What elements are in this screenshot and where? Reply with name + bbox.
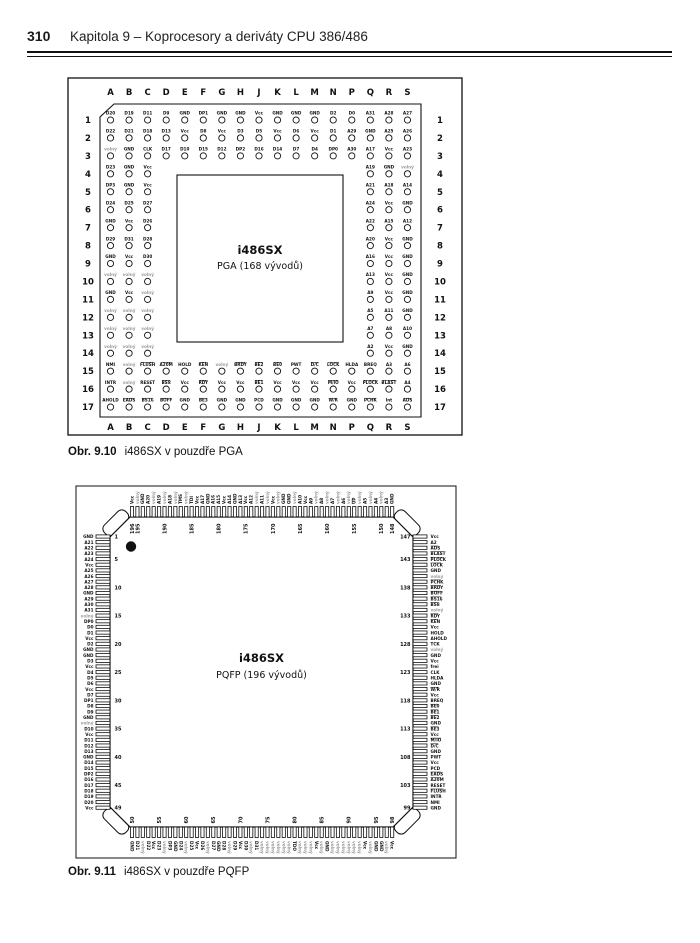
svg-text:A10: A10	[403, 326, 412, 331]
pqfp-pin-108: PWT	[413, 755, 441, 760]
svg-text:GND: GND	[272, 398, 283, 403]
svg-text:A21: A21	[84, 540, 93, 545]
svg-text:P: P	[349, 423, 355, 433]
pga-pin-A14: volný	[104, 344, 117, 356]
pqfp-pin-59: D24	[178, 827, 183, 850]
pga-pin-S17: ADS	[403, 398, 413, 410]
pga-pin-M16: Vcc	[311, 380, 320, 392]
pqfp-pin-74: volný	[260, 827, 265, 854]
svg-text:GND: GND	[235, 398, 246, 403]
pqfp-pin-169: volný	[276, 491, 281, 517]
pga-pin-L1: GND	[291, 111, 302, 123]
svg-text:165: 165	[298, 523, 304, 534]
pga-pin-K2: Vcc	[273, 129, 282, 141]
svg-text:volný: volný	[281, 841, 286, 854]
pqfp-pin-132: KEN	[413, 619, 441, 624]
pga-pin-Q13: A7	[367, 326, 373, 338]
pqfp-pin-70: Vcc	[238, 827, 243, 850]
svg-text:185: 185	[190, 523, 196, 534]
pqfp-pin-41: D14	[84, 760, 110, 765]
pqfp-pin-183: A17	[200, 495, 205, 517]
pqfp-pin-1: GND	[83, 534, 110, 539]
svg-text:D2: D2	[87, 642, 93, 647]
pqfp-pin-140: volný	[413, 574, 444, 579]
svg-text:PCD: PCD	[254, 398, 264, 403]
svg-text:D16: D16	[84, 777, 93, 782]
pqfp-pin-28: Vcc	[85, 687, 110, 692]
pqfp-pin-84: Vcc	[314, 827, 319, 850]
pqfp-pin-number: 5	[115, 557, 119, 563]
pqfp-pin-78: volný	[281, 827, 286, 854]
svg-text:A14: A14	[403, 182, 412, 187]
pqfp-pin-154: volný	[357, 491, 362, 517]
pqfp-pin-153: A5	[362, 498, 367, 517]
pqfp-pin-105: EADS	[413, 772, 443, 777]
pga-pin-S8: GND	[402, 236, 413, 248]
svg-text:GND: GND	[291, 111, 302, 116]
pqfp-pin-73: D31	[254, 827, 259, 850]
pqfp-pin-number: 185	[190, 523, 196, 534]
svg-text:D1: D1	[87, 630, 93, 635]
pga-pin-A15: NMI	[106, 362, 116, 374]
pga-pin-S6: GND	[402, 200, 413, 212]
svg-text:Vcc: Vcc	[85, 805, 94, 810]
svg-text:A9: A9	[308, 498, 313, 504]
svg-text:BREQ: BREQ	[364, 362, 377, 367]
svg-text:N: N	[330, 423, 337, 433]
pga-pin-B12: volný	[123, 308, 136, 320]
svg-text:7: 7	[437, 224, 443, 234]
pga-pin-Q16: PLOCK	[363, 380, 379, 392]
pqfp-pin-number: 50	[130, 816, 136, 823]
pga-pin-B2: D21	[124, 129, 133, 141]
pga-pin-Q15: BREQ	[364, 362, 377, 374]
pqfp-pin-number: 55	[157, 816, 163, 823]
svg-text:D8: D8	[200, 129, 206, 134]
svg-text:HOLD: HOLD	[431, 630, 445, 635]
svg-text:A5: A5	[362, 498, 367, 504]
pqfp-pin-163: A9	[308, 498, 313, 517]
pqfp-pin-62: Vcc	[195, 827, 200, 850]
svg-text:GND: GND	[180, 398, 191, 403]
pqfp-pin-126: GND	[413, 653, 441, 658]
svg-text:Vcc: Vcc	[431, 732, 440, 737]
svg-text:A12: A12	[403, 218, 412, 223]
svg-text:D10: D10	[84, 726, 93, 731]
svg-text:D22: D22	[146, 841, 151, 850]
pga-pin-M15: D/C	[311, 362, 319, 374]
pga-pin-G17: GND	[217, 398, 228, 410]
pqfp-pin-90: volný	[346, 827, 351, 854]
svg-text:A18: A18	[384, 182, 393, 187]
svg-text:volný: volný	[335, 841, 340, 854]
pga-pin-L16: Vcc	[292, 380, 301, 392]
pqfp-pin-34: volný	[81, 721, 110, 726]
svg-text:75: 75	[265, 816, 271, 823]
pqfp-pin-5: A24	[84, 557, 110, 562]
pqfp-pin-22: GND	[83, 653, 110, 658]
pqfp-pin-107: Vcc	[413, 760, 439, 765]
svg-text:GND: GND	[402, 254, 413, 259]
pga-pin-B13: volný	[123, 326, 136, 338]
svg-text:Vcc: Vcc	[311, 129, 320, 134]
pga-pin-B5: GND	[124, 182, 135, 194]
pqfp-pin-138: BRDY	[413, 585, 444, 590]
pqfp-pin-109: GND	[413, 749, 441, 754]
svg-text:L: L	[293, 423, 299, 433]
svg-text:J: J	[256, 423, 260, 433]
pga-pin-S13: A10	[403, 326, 412, 338]
svg-text:GND: GND	[402, 308, 413, 313]
pqfp-pin-number: 118	[400, 698, 411, 704]
svg-text:BREQ: BREQ	[431, 698, 444, 703]
pqfp-pin-39: D13	[84, 749, 110, 754]
svg-text:Vcc: Vcc	[85, 687, 94, 692]
svg-text:A18: A18	[167, 495, 172, 504]
pqfp-pin-101: INTR	[413, 794, 442, 799]
pga-pin-Q8: A20	[366, 236, 375, 248]
pga-pin-G3: D12	[217, 147, 226, 159]
pqfp-pin-30: DP1	[84, 698, 110, 703]
pga-pin-S7: A12	[403, 218, 412, 230]
svg-text:INTR: INTR	[105, 380, 117, 385]
svg-text:3: 3	[85, 152, 91, 162]
svg-text:volný: volný	[265, 491, 270, 504]
pqfp-pin-81: volný	[298, 827, 303, 854]
svg-text:A17: A17	[200, 495, 205, 504]
svg-text:D31: D31	[254, 841, 259, 850]
svg-text:D6: D6	[293, 129, 299, 134]
svg-text:volný: volný	[276, 841, 281, 854]
pqfp-pin-6: Vcc	[85, 562, 110, 567]
pqfp-pin-43: DP2	[84, 772, 110, 777]
caption-pga: Obr. 9.10i486SX v pouzdře PGA	[68, 446, 243, 458]
caption-pga-label: Obr. 9.10	[68, 446, 117, 458]
svg-text:volný: volný	[330, 841, 335, 854]
svg-text:GND: GND	[83, 591, 94, 596]
pga-pin-D2: D13	[162, 129, 171, 141]
pga-pin-C15: FLUSH	[140, 362, 156, 374]
pqfp-pin-172: A11	[259, 495, 264, 517]
pga-pin-L15: PWT	[291, 362, 302, 374]
pqfp-pin-95: GND	[373, 827, 378, 852]
pqfp-pin-number: 1	[115, 535, 119, 541]
pqfp-pin-10: A28	[84, 585, 110, 590]
svg-text:A11: A11	[384, 308, 393, 313]
svg-text:volný: volný	[123, 362, 136, 367]
pqfp-pin-number: 15	[115, 614, 122, 620]
pga-pin-R8: Vcc	[385, 236, 394, 248]
pga-pin-B6: D25	[124, 200, 133, 212]
svg-text:Vcc: Vcc	[431, 659, 440, 664]
svg-text:190: 190	[162, 523, 168, 534]
svg-text:GND: GND	[309, 111, 320, 116]
pqfp-pin-26: D5	[87, 675, 110, 680]
pqfp-pin-13: A30	[84, 602, 110, 607]
pqfp-pin-121: GND	[413, 681, 441, 686]
pqfp-pin-25: D4	[87, 670, 110, 675]
svg-text:volný: volný	[357, 491, 362, 504]
svg-text:HLDA: HLDA	[345, 362, 359, 367]
pqfp-pin-110: D/C	[413, 743, 439, 748]
svg-text:DP2: DP2	[84, 772, 94, 777]
svg-text:volný: volný	[368, 491, 373, 504]
svg-text:GND: GND	[287, 493, 292, 504]
pqfp-pin-32: D9	[87, 709, 110, 714]
pqfp-pin-195: volný	[135, 491, 140, 517]
svg-text:volný: volný	[123, 344, 136, 349]
pqfp-pin-69: D29	[232, 827, 237, 850]
pga-pin-A9: GND	[105, 254, 116, 266]
pqfp-pin-112: Vcc	[413, 732, 439, 737]
pqfp-pin-37: D11	[84, 738, 110, 743]
pga-pin-E1: GND	[180, 111, 191, 123]
svg-text:A14: A14	[227, 495, 232, 504]
svg-text:GND: GND	[217, 398, 228, 403]
svg-text:volný: volný	[140, 841, 145, 854]
svg-text:volný: volný	[141, 326, 154, 331]
pqfp-pin-53: D22	[146, 827, 151, 850]
pqfp-pin-192: volný	[151, 491, 156, 517]
svg-text:15: 15	[82, 367, 94, 377]
pga-pin-S15: A6	[404, 362, 410, 374]
pqfp-pin-58: GND	[173, 827, 178, 852]
pga-pin-C7: D26	[143, 218, 152, 230]
svg-text:volný: volný	[384, 841, 389, 854]
pga-pin-S12: GND	[402, 308, 413, 320]
svg-text:A: A	[107, 88, 114, 98]
pqfp-pin-72: volný	[249, 827, 254, 854]
pqfp-pin-4: A23	[84, 551, 110, 556]
pqfp-pin-98: Vcc	[390, 827, 395, 850]
pqfp-pin-46: D18	[84, 788, 110, 793]
svg-text:G: G	[218, 88, 225, 98]
svg-text:D29: D29	[232, 841, 237, 850]
svg-text:D3: D3	[87, 659, 93, 664]
pga-pin-A8: D29	[106, 236, 115, 248]
svg-text:R: R	[386, 423, 393, 433]
pqfp-pin-128: TCK	[413, 642, 440, 647]
svg-text:11: 11	[82, 295, 94, 305]
svg-text:Vcc: Vcc	[85, 732, 94, 737]
pga-pin-R16: BLAST	[381, 380, 396, 392]
pqfp-pin-136: BS16	[413, 596, 443, 601]
pga-pin-A5: DP3	[106, 182, 116, 194]
pga-pin-N16: M/IO	[328, 380, 339, 392]
pga-pin-L17: GND	[291, 398, 302, 410]
pqfp-pin-27: D6	[87, 681, 110, 686]
svg-text:Vcc: Vcc	[218, 129, 227, 134]
svg-text:AHOLD: AHOLD	[102, 398, 119, 403]
svg-text:D4: D4	[87, 670, 93, 675]
svg-text:A19: A19	[157, 495, 162, 504]
pga-pin-J2: D5	[256, 129, 262, 141]
svg-text:volný: volný	[205, 841, 210, 854]
svg-text:volný: volný	[292, 491, 297, 504]
pga-pin-C16: RESET	[140, 380, 155, 392]
svg-text:M: M	[310, 88, 318, 98]
svg-text:6: 6	[437, 206, 443, 216]
pqfp-pin-75: volný	[265, 827, 270, 854]
pga-pin-D1: D9	[163, 111, 169, 123]
svg-text:C: C	[144, 88, 150, 98]
svg-text:A22: A22	[84, 546, 93, 551]
svg-text:volný: volný	[162, 491, 167, 504]
svg-text:4: 4	[437, 170, 443, 180]
pqfp-pin-162: volný	[314, 491, 319, 517]
svg-text:volný: volný	[141, 308, 154, 313]
pga-pin-P3: A30	[347, 147, 356, 159]
pqfp-pin-173: volný	[254, 491, 259, 517]
pqfp-pin-134: volný	[413, 608, 444, 613]
svg-text:D24: D24	[106, 200, 115, 205]
pga-pin-J1: Vcc	[255, 111, 264, 123]
svg-text:D30: D30	[243, 841, 248, 850]
svg-text:A22: A22	[366, 218, 375, 223]
svg-text:GND: GND	[83, 755, 94, 760]
svg-text:CLK: CLK	[143, 147, 153, 152]
svg-text:Int: Int	[386, 398, 393, 403]
pqfp-pin-175: Vcc	[243, 495, 248, 517]
svg-text:D30: D30	[143, 254, 152, 259]
svg-text:A6: A6	[341, 498, 346, 504]
pqfp-pin-23: D3	[87, 659, 110, 664]
pga-pin-G15: volný	[215, 362, 228, 374]
pqfp-pin-15: volný	[81, 613, 110, 618]
svg-text:volný: volný	[319, 841, 324, 854]
pqfp-pin-18: D1	[87, 630, 110, 635]
svg-text:Vcc: Vcc	[431, 760, 440, 765]
pga-pin-B15: volný	[123, 362, 136, 374]
pqfp-pin-24: Vcc	[85, 664, 110, 669]
pqfp-pin-161: A8	[319, 498, 324, 517]
pqfp-pin-170: Vcc	[270, 495, 275, 517]
pqfp-pin-number: 90	[347, 816, 353, 823]
svg-text:B: B	[126, 423, 132, 433]
pqfp-pin-156: volný	[346, 491, 351, 517]
pqfp-pin-155: UP	[352, 498, 357, 517]
svg-text:GND: GND	[105, 254, 116, 259]
pga-pin-Q10: A13	[366, 272, 375, 284]
pga-pin-A12: volný	[104, 308, 117, 320]
svg-text:D7: D7	[293, 147, 299, 152]
pqfp-pin-number: 170	[271, 523, 277, 534]
svg-text:Vcc: Vcc	[390, 841, 395, 850]
svg-text:A5: A5	[367, 308, 373, 313]
svg-text:Vcc: Vcc	[431, 625, 440, 630]
pga-pin-S10: GND	[402, 272, 413, 284]
pqfp-pin-87: volný	[330, 827, 335, 854]
pqfp-pin-50: GND	[130, 827, 135, 852]
svg-text:GND: GND	[347, 398, 358, 403]
svg-text:A13: A13	[366, 272, 375, 277]
pqfp-pin-47: D19	[84, 794, 110, 799]
svg-text:DP1: DP1	[199, 111, 209, 116]
svg-text:volný: volný	[173, 491, 178, 504]
svg-text:GND: GND	[373, 841, 378, 852]
svg-text:CLK: CLK	[431, 670, 441, 675]
pqfp-pin-113: BE3	[413, 726, 440, 731]
svg-text:volný: volný	[227, 841, 232, 854]
pqfp-pin-188: volný	[173, 491, 178, 517]
pqfp-pin-151: A4	[373, 498, 378, 517]
svg-text:volný: volný	[141, 272, 154, 277]
svg-text:9: 9	[437, 260, 443, 270]
svg-text:Vcc: Vcc	[85, 636, 94, 641]
svg-text:D17: D17	[84, 783, 93, 788]
pqfp-pin-190: volný	[162, 491, 167, 517]
pga-pin-R3: Vcc	[385, 147, 394, 159]
pqfp-pin-88: volný	[335, 827, 340, 854]
pqfp-pin-49: Vcc	[85, 805, 110, 810]
pqfp-pin-124: frei	[413, 664, 439, 669]
pqfp-pin-122: HLDA	[413, 675, 444, 680]
svg-text:volný: volný	[379, 491, 384, 504]
pga-pin-B1: D19	[124, 111, 133, 123]
svg-text:D12: D12	[84, 743, 93, 748]
svg-text:D31: D31	[124, 236, 133, 241]
pqfp-pin-64: volný	[205, 827, 210, 854]
svg-text:A19: A19	[366, 165, 375, 170]
pqfp-pin-66: GND	[216, 827, 221, 852]
svg-text:2: 2	[85, 134, 91, 144]
svg-text:Vcc: Vcc	[181, 129, 190, 134]
caption-pqfp-label: Obr. 9.11	[68, 866, 116, 878]
pqfp-figure: VccvolnýGNDA20volnýA19volnýA18volnýTMSvo…	[76, 486, 456, 858]
svg-text:GND: GND	[291, 398, 302, 403]
svg-text:volný: volný	[431, 574, 444, 579]
svg-text:Vcc: Vcc	[385, 344, 394, 349]
pga-pin-E2: Vcc	[181, 129, 190, 141]
svg-text:volný: volný	[298, 841, 303, 854]
svg-text:Vcc: Vcc	[144, 182, 153, 187]
pqfp-pin-127: volný	[413, 647, 444, 652]
svg-text:TDI: TDI	[189, 496, 194, 504]
pga-pin-R14: Vcc	[385, 344, 394, 356]
pqfp-pin-number: 190	[162, 523, 168, 534]
svg-text:D21: D21	[135, 841, 140, 850]
svg-text:DP0: DP0	[84, 619, 94, 624]
svg-text:volný: volný	[123, 272, 136, 277]
svg-text:RESET: RESET	[431, 783, 446, 788]
svg-text:98: 98	[390, 816, 396, 823]
pga-pin-S4: volný	[401, 165, 414, 177]
svg-text:H: H	[237, 88, 244, 98]
svg-text:D24: D24	[178, 841, 183, 850]
caption-pga-text: i486SX v pouzdře PGA	[125, 446, 243, 458]
svg-text:F: F	[200, 88, 206, 98]
pqfp-pin-11: GND	[83, 591, 110, 596]
pqfp-pin-67: D28	[222, 827, 227, 850]
pga-pin-C17: BS16	[142, 398, 154, 410]
svg-text:D26: D26	[200, 841, 205, 850]
pga-pin-Q6: A24	[366, 200, 375, 212]
pga-pin-P17: GND	[347, 398, 358, 410]
svg-text:A17: A17	[366, 147, 375, 152]
svg-text:D10: D10	[180, 147, 189, 152]
pga-pin-A11: GND	[105, 290, 116, 302]
svg-text:D25: D25	[124, 200, 133, 205]
svg-text:195: 195	[135, 523, 141, 534]
pqfp-pin-52: volný	[140, 827, 145, 854]
pqfp-pin-number: 65	[211, 816, 217, 823]
svg-text:A11: A11	[259, 495, 264, 504]
pqfp-pin-number: 80	[293, 816, 299, 823]
svg-text:DP2: DP2	[236, 147, 246, 152]
svg-text:volný: volný	[104, 308, 117, 313]
svg-text:volný: volný	[270, 841, 275, 854]
pga-pin-K16: Vcc	[273, 380, 282, 392]
